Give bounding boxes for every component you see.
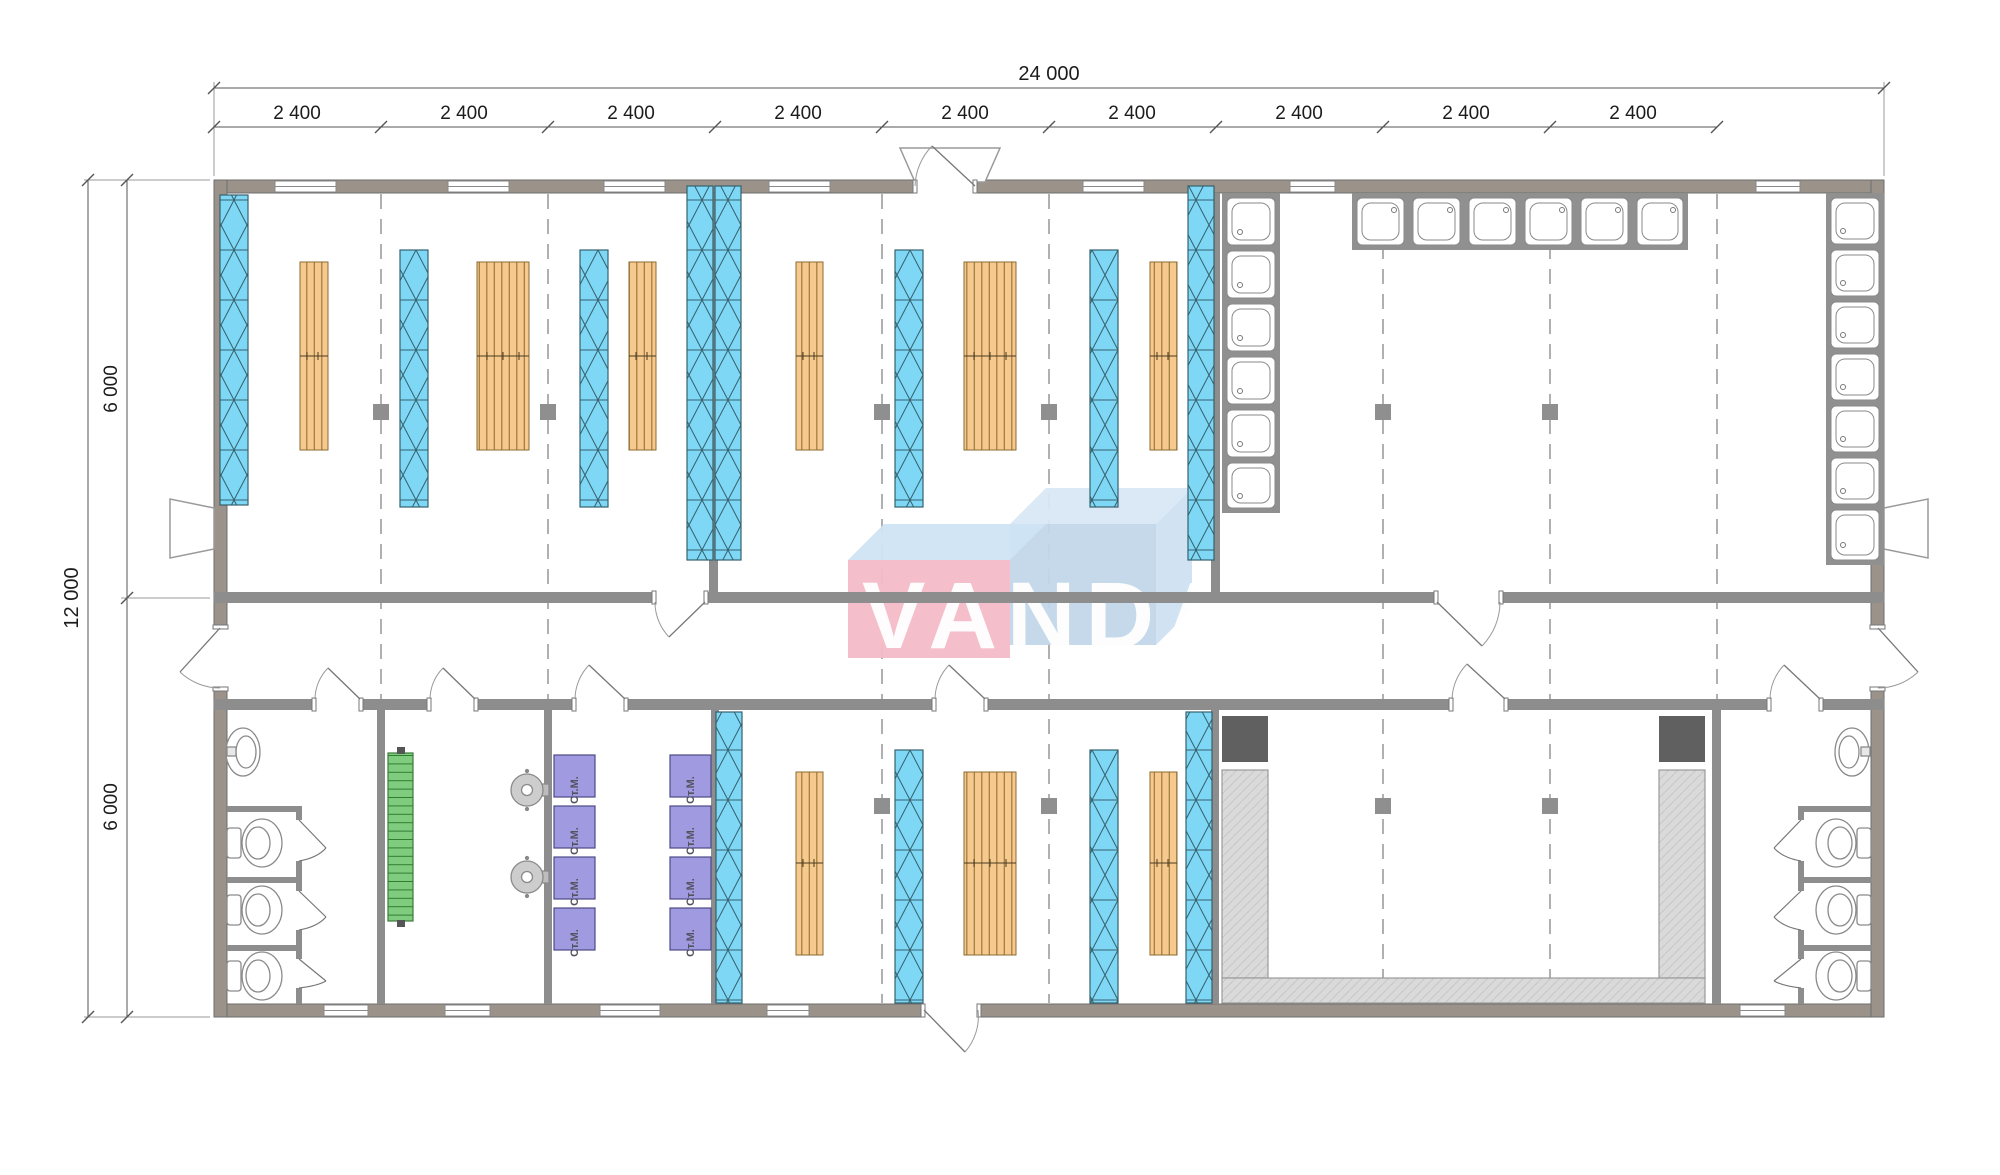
door-bedroom3 [932, 665, 988, 712]
washer-label: Ст.М. [685, 827, 697, 855]
door-shower-room [1434, 590, 1503, 646]
bed-single [796, 772, 823, 955]
door-wc2 [1767, 665, 1823, 712]
wc1-stall-wall [227, 877, 300, 883]
floor-plan-drawing: VANDA [0, 0, 2000, 1175]
bed-double [964, 262, 1016, 450]
vanda-logo: VANDA [848, 488, 1243, 669]
wc2-stall-doors [1774, 820, 1801, 988]
toilet [227, 886, 282, 934]
wall-stairhall-laundry [544, 710, 552, 1004]
shower-trays [1227, 198, 1879, 560]
stair-newel [397, 920, 405, 927]
washer-label: Ст.М. [685, 878, 697, 906]
shower-tray [1357, 198, 1404, 245]
svg-text:2 400: 2 400 [607, 103, 655, 124]
dim-overall-width: 24 000 [208, 63, 1890, 94]
wc1-stall-front [296, 806, 302, 820]
shower-tray [1227, 251, 1275, 298]
wc1-stall-wall [227, 806, 300, 812]
glazed-partition [1186, 712, 1212, 1003]
canopy-left [170, 499, 214, 558]
toilet [227, 952, 282, 1000]
wc2-stall-front [1798, 930, 1804, 945]
column [1542, 798, 1558, 814]
logo-text: VANDA [862, 563, 1243, 669]
bed-double [477, 262, 529, 450]
stairs [388, 747, 413, 927]
wc2-stall-front [1798, 806, 1804, 820]
water-heater [511, 857, 549, 898]
shower-tray [1831, 458, 1879, 504]
shower-tray [1227, 198, 1275, 245]
svg-text:24 000: 24 000 [1018, 63, 1079, 85]
column [1542, 404, 1558, 420]
glazed-screen [1090, 250, 1118, 507]
washer-label: Ст.М. [569, 878, 581, 906]
wc2-stall-front [1798, 988, 1804, 1004]
washer-label: Ст.М. [569, 929, 581, 957]
washer-label: Ст.М. [569, 827, 581, 855]
bed-single [1150, 772, 1177, 955]
wc1-stall-front [296, 988, 302, 1004]
sink [1835, 728, 1870, 776]
door-bedroom1 [652, 590, 708, 637]
shower-tray [1413, 198, 1460, 245]
wall-wc1-stairhall [377, 710, 385, 1004]
shower-tray [1637, 198, 1683, 245]
toilet [1816, 886, 1871, 934]
wc2-stall-front [1798, 945, 1804, 959]
svg-text:2 400: 2 400 [1108, 103, 1156, 124]
door-laundry [572, 665, 628, 712]
glazed-screen [895, 750, 923, 1003]
glazed-screen [580, 250, 608, 507]
column [1375, 404, 1391, 420]
svg-text:2 400: 2 400 [440, 103, 488, 124]
glazed-screen [895, 250, 923, 507]
svg-text:12 000: 12 000 [61, 567, 83, 628]
svg-text:2 400: 2 400 [1442, 103, 1490, 124]
floor-plan-canvas: VANDA [0, 0, 2000, 1175]
column [874, 798, 890, 814]
wc1-stall-front [296, 930, 302, 945]
shower-tray [1227, 357, 1275, 404]
door-bottom-entrance [921, 1002, 981, 1052]
wc2-stall-front [1798, 861, 1804, 877]
dim-overall-depth: 12 000 [61, 174, 94, 1023]
shower-tray [1581, 198, 1628, 245]
bed-single [796, 262, 823, 450]
door-left-entrance [180, 625, 229, 691]
wc2-stall-wall [1800, 877, 1872, 883]
laundry-machines: Ст.М. Ст.М. Ст.М. Ст.М. Ст.М. Ст.М. Ст.М… [554, 755, 711, 957]
dining-fixtures [1222, 716, 1705, 1003]
column [1375, 798, 1391, 814]
shower-tray [1227, 410, 1275, 457]
svg-text:2 400: 2 400 [774, 103, 822, 124]
wc1-stall-front [296, 945, 302, 959]
equipment-block [1222, 716, 1268, 762]
wc1-stall-front [296, 877, 302, 891]
stair-run [388, 753, 413, 921]
toilet [1816, 952, 1871, 1000]
glazed-screen [1090, 750, 1118, 1003]
toilet [227, 819, 282, 867]
washer-label: Ст.М. [685, 929, 697, 957]
door-right-entrance [1869, 625, 1918, 691]
column [874, 404, 890, 420]
equipment-block [1659, 716, 1705, 762]
svg-text:2 400: 2 400 [941, 103, 989, 124]
column [540, 404, 556, 420]
glazed-partition [715, 186, 741, 560]
toilet [1816, 819, 1871, 867]
column [1041, 404, 1057, 420]
u-bench [1222, 770, 1705, 1003]
canopy-right [1884, 499, 1928, 558]
svg-text:6 000: 6 000 [101, 783, 122, 831]
window-strip-left-wall [220, 195, 248, 505]
shower-tray [1227, 304, 1275, 351]
wall-dining-wc2 [1712, 710, 1721, 1004]
glazed-partition [716, 712, 742, 1003]
shower-tray [1831, 510, 1879, 560]
shower-tray [1227, 463, 1275, 508]
glazed-partition [687, 186, 713, 560]
svg-text:6 000: 6 000 [101, 365, 122, 413]
svg-text:2 400: 2 400 [1275, 103, 1323, 124]
door-dining [1449, 664, 1508, 712]
washer-label: Ст.М. [685, 776, 697, 804]
svg-text:2 400: 2 400 [1609, 103, 1657, 124]
shower-tray [1831, 198, 1879, 244]
dim-modules: 2 400 2 400 2 400 2 400 2 400 2 400 2 40… [208, 103, 1723, 133]
wc1-stall-front [296, 861, 302, 877]
wc1-stall-doors [299, 820, 326, 988]
bed-single [1150, 262, 1177, 450]
shower-tray [1831, 302, 1879, 348]
glazed-partition [1188, 186, 1214, 560]
bed-single [300, 262, 328, 450]
shower-tray [1525, 198, 1572, 245]
canopy-top [900, 148, 1000, 182]
shower-room-fixtures [1222, 193, 1884, 565]
corridor-wall-upper [214, 592, 1884, 603]
bed-double [964, 772, 1016, 955]
shower-tray [1831, 406, 1879, 452]
sanitary-fixtures [226, 728, 1871, 1000]
wc2-stall-front [1798, 877, 1804, 891]
wc1-stall-wall [227, 945, 300, 951]
washer-label: Ст.М. [569, 776, 581, 804]
water-heater [511, 770, 549, 811]
shower-tray [1469, 198, 1516, 245]
stair-newel [397, 747, 405, 754]
sink [226, 728, 260, 776]
shower-tray [1831, 250, 1879, 296]
door-stair-hall [427, 668, 478, 712]
wc2-stall-wall [1800, 945, 1872, 951]
bed-single [629, 262, 656, 450]
column [373, 404, 389, 420]
shower-tray [1831, 354, 1879, 400]
wc2-stall-wall [1800, 806, 1872, 812]
glazed-screen [400, 250, 428, 507]
column [1041, 798, 1057, 814]
door-wc1 [312, 668, 363, 712]
svg-text:2 400: 2 400 [273, 103, 321, 124]
